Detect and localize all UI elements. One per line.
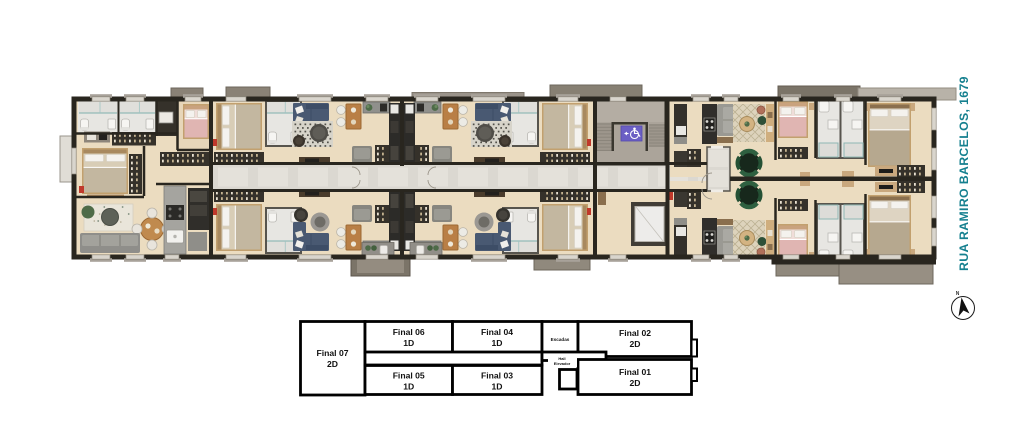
- svg-text:Final 04: Final 04: [481, 327, 513, 337]
- svg-text:Elevador: Elevador: [554, 361, 571, 366]
- svg-text:Final 07: Final 07: [317, 348, 349, 358]
- svg-text:1D: 1D: [403, 338, 414, 348]
- svg-text:Final 03: Final 03: [481, 371, 513, 381]
- svg-text:2D: 2D: [327, 359, 338, 369]
- svg-text:RUA RAMIRO BARCELOS, 1679: RUA RAMIRO BARCELOS, 1679: [957, 76, 971, 271]
- svg-text:Final 01: Final 01: [619, 367, 651, 377]
- svg-text:1D: 1D: [492, 338, 503, 348]
- svg-text:Escadas: Escadas: [551, 337, 570, 342]
- svg-text:2D: 2D: [630, 378, 641, 388]
- svg-text:1D: 1D: [403, 382, 414, 392]
- svg-text:1D: 1D: [492, 382, 503, 392]
- svg-text:2D: 2D: [630, 339, 641, 349]
- svg-text:Final 06: Final 06: [393, 327, 425, 337]
- svg-text:N: N: [956, 291, 960, 297]
- svg-text:Final 05: Final 05: [393, 371, 425, 381]
- svg-text:Final 02: Final 02: [619, 328, 651, 338]
